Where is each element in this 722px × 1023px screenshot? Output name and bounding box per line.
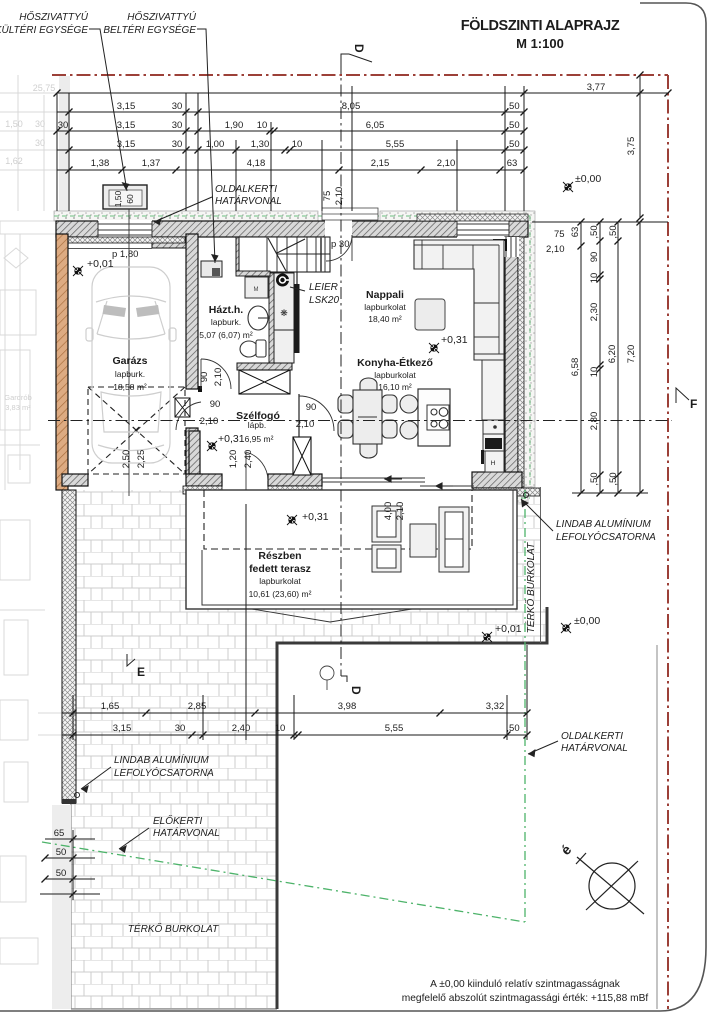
svg-text:Részben: Részben: [258, 550, 301, 562]
svg-text:16,10 m²: 16,10 m²: [378, 382, 412, 392]
svg-text:HATÁRVONAL: HATÁRVONAL: [153, 826, 220, 839]
svg-text:3,15: 3,15: [117, 101, 136, 112]
svg-text:LINDAB ALUMÍNIUM: LINDAB ALUMÍNIUM: [114, 753, 209, 766]
svg-text:3,15: 3,15: [117, 120, 136, 131]
svg-text:2,10: 2,10: [437, 158, 456, 169]
svg-text:10: 10: [292, 139, 303, 150]
svg-text:2,10: 2,10: [213, 368, 224, 387]
svg-text:,50: ,50: [589, 225, 600, 238]
svg-text:Gardrób: Gardrób: [4, 393, 32, 402]
svg-text:10,61 (23,60) m²: 10,61 (23,60) m²: [249, 589, 312, 599]
svg-text:1,65: 1,65: [101, 701, 120, 712]
svg-text:3,98: 3,98: [338, 701, 357, 712]
svg-text:90: 90: [199, 372, 210, 383]
svg-text:60: 60: [125, 194, 135, 204]
svg-text:A ±0,00 kiinduló relatív szint: A ±0,00 kiinduló relatív szintmagasságna…: [430, 979, 621, 990]
svg-text:30: 30: [172, 139, 183, 150]
svg-text:1,50: 1,50: [5, 119, 23, 129]
svg-text:6,95 m²: 6,95 m²: [245, 434, 274, 444]
svg-text:+0,31: +0,31: [302, 511, 329, 523]
svg-text:H: H: [491, 460, 496, 467]
svg-text:75: 75: [554, 229, 565, 240]
svg-text:KÜLTÉRI EGYSÉGE: KÜLTÉRI EGYSÉGE: [0, 23, 88, 36]
svg-text:1,37: 1,37: [142, 158, 161, 169]
svg-text:megfelelő abszolút szintmagass: megfelelő abszolút szintmagassági érték:…: [402, 993, 649, 1004]
svg-text:6,05: 6,05: [366, 120, 385, 131]
svg-text:2,80: 2,80: [589, 412, 600, 431]
svg-text:D: D: [352, 44, 366, 53]
svg-text:lapburkolat: lapburkolat: [259, 576, 301, 586]
svg-text:3,75: 3,75: [626, 137, 637, 156]
svg-text:30: 30: [172, 120, 183, 131]
svg-text:M 1:100: M 1:100: [516, 36, 564, 51]
svg-text:lapburkolat: lapburkolat: [374, 370, 416, 380]
svg-text:p 1,80: p 1,80: [112, 249, 138, 260]
svg-text:1,90: 1,90: [225, 120, 244, 131]
svg-text:2,50: 2,50: [121, 450, 132, 469]
svg-text:OLDALKERTI: OLDALKERTI: [215, 184, 277, 195]
svg-text:65: 65: [54, 828, 65, 839]
svg-text:2,15: 2,15: [371, 158, 390, 169]
svg-text:2,10: 2,10: [296, 419, 315, 430]
svg-text:1,00: 1,00: [206, 139, 225, 150]
svg-text:2,10: 2,10: [200, 416, 219, 427]
svg-text:1,38: 1,38: [91, 158, 110, 169]
svg-text:2,85: 2,85: [188, 701, 207, 712]
svg-text:1,62: 1,62: [5, 156, 23, 166]
svg-text:p 30: p 30: [331, 239, 350, 250]
svg-text:6,20: 6,20: [607, 345, 618, 364]
svg-text:❋: ❋: [280, 308, 288, 318]
svg-text:4,00: 4,00: [383, 502, 394, 521]
svg-text:LEIER: LEIER: [309, 282, 338, 293]
svg-text:2,10: 2,10: [334, 187, 345, 206]
svg-text:10: 10: [257, 120, 268, 131]
svg-text:18,58 m²: 18,58 m²: [113, 382, 147, 392]
svg-text:2,40: 2,40: [232, 723, 251, 734]
svg-text:+0,01: +0,01: [87, 258, 114, 270]
svg-text:63: 63: [570, 227, 581, 238]
svg-text:30: 30: [35, 119, 45, 129]
svg-text:2,10: 2,10: [546, 244, 565, 255]
svg-text:OLDALKERTI: OLDALKERTI: [561, 731, 623, 742]
svg-text:lápb.: lápb.: [248, 420, 266, 430]
svg-text:HŐSZIVATTYÚ: HŐSZIVATTYÚ: [19, 9, 88, 23]
svg-text:30: 30: [35, 138, 45, 148]
svg-text:30: 30: [175, 723, 186, 734]
svg-text:10: 10: [589, 367, 600, 378]
svg-text:50: 50: [56, 868, 67, 879]
svg-text:TÉRKŐ BURKOLAT: TÉRKŐ BURKOLAT: [128, 921, 219, 935]
svg-text:LEFOLYÓCSATORNA: LEFOLYÓCSATORNA: [556, 530, 656, 543]
svg-text:,50: ,50: [506, 723, 519, 734]
svg-text:,50: ,50: [506, 120, 519, 131]
svg-text:Nappali: Nappali: [366, 289, 404, 301]
svg-text:E: E: [137, 665, 145, 679]
svg-text:2,30: 2,30: [589, 303, 600, 322]
svg-text:ELŐKERTI: ELŐKERTI: [153, 813, 202, 827]
svg-text:,50: ,50: [506, 139, 519, 150]
svg-text:6,58: 6,58: [570, 358, 581, 377]
svg-text:TÉRKŐ BURKOLAT: TÉRKŐ BURKOLAT: [523, 542, 537, 633]
svg-text:,50: ,50: [608, 472, 619, 485]
svg-text:HŐSZIVATTYÚ: HŐSZIVATTYÚ: [127, 9, 196, 23]
svg-text:+0,31: +0,31: [218, 433, 245, 445]
svg-text:2,10: 2,10: [395, 502, 406, 521]
svg-text:3,83 m²: 3,83 m²: [5, 403, 31, 412]
svg-text:+0,31: +0,31: [441, 334, 468, 346]
svg-text:5,55: 5,55: [386, 139, 405, 150]
svg-text:50: 50: [56, 847, 67, 858]
svg-text:Konyha-Étkező: Konyha-Étkező: [357, 356, 433, 369]
svg-text:HATÁRVONAL: HATÁRVONAL: [215, 194, 282, 207]
svg-text:lapburk.: lapburk.: [211, 317, 241, 327]
svg-text:1,30: 1,30: [251, 139, 270, 150]
svg-text:7,20: 7,20: [626, 345, 637, 364]
svg-text:3,15: 3,15: [113, 723, 132, 734]
svg-text:±0,00: ±0,00: [575, 173, 601, 185]
svg-text:fedett terasz: fedett terasz: [249, 563, 311, 575]
svg-text:Garázs: Garázs: [112, 355, 147, 367]
svg-text:18,40 m²: 18,40 m²: [368, 314, 402, 324]
svg-text:2,40: 2,40: [243, 450, 254, 469]
svg-text:HATÁRVONAL: HATÁRVONAL: [561, 741, 628, 754]
svg-text:±0,00: ±0,00: [574, 615, 600, 627]
svg-text:5,07 (6,07) m²: 5,07 (6,07) m²: [199, 330, 253, 340]
svg-text:3,77: 3,77: [587, 82, 606, 93]
svg-text:25,75: 25,75: [33, 83, 56, 93]
svg-text:4,18: 4,18: [247, 158, 266, 169]
svg-text:10: 10: [589, 273, 600, 284]
svg-text:90: 90: [306, 402, 317, 413]
svg-text:3,32: 3,32: [486, 701, 505, 712]
svg-text:FÖLDSZINTI ALAPRAJZ: FÖLDSZINTI ALAPRAJZ: [461, 17, 620, 34]
svg-text:LINDAB ALUMÍNIUM: LINDAB ALUMÍNIUM: [556, 517, 651, 530]
svg-text:75: 75: [322, 191, 333, 202]
svg-text:30: 30: [58, 120, 69, 131]
svg-text:D: D: [349, 686, 363, 695]
svg-text:90: 90: [589, 252, 600, 263]
svg-text:LEFOLYÓCSATORNA: LEFOLYÓCSATORNA: [114, 766, 214, 779]
svg-text:lapburkolat: lapburkolat: [364, 302, 406, 312]
svg-text:90: 90: [210, 399, 221, 410]
svg-text:1,50: 1,50: [113, 190, 123, 207]
svg-text:,50: ,50: [589, 472, 600, 485]
svg-text:2,25: 2,25: [136, 450, 147, 469]
svg-text:63: 63: [507, 158, 518, 169]
svg-text:BELTÉRI EGYSÉGE: BELTÉRI EGYSÉGE: [103, 23, 196, 36]
svg-text:M: M: [254, 287, 259, 293]
svg-text:8,05: 8,05: [342, 101, 361, 112]
svg-text:F: F: [690, 397, 697, 411]
svg-text:Házt.h.: Házt.h.: [209, 304, 244, 316]
svg-text:1,20: 1,20: [228, 450, 239, 469]
svg-text:,50: ,50: [506, 101, 519, 112]
svg-text:+0,01: +0,01: [495, 623, 522, 635]
svg-text:10: 10: [275, 723, 286, 734]
svg-text:LSK20: LSK20: [309, 295, 339, 306]
svg-text:,50: ,50: [608, 225, 619, 238]
svg-text:5,55: 5,55: [385, 723, 404, 734]
svg-text:30: 30: [172, 101, 183, 112]
svg-text:lapburk.: lapburk.: [115, 369, 145, 379]
